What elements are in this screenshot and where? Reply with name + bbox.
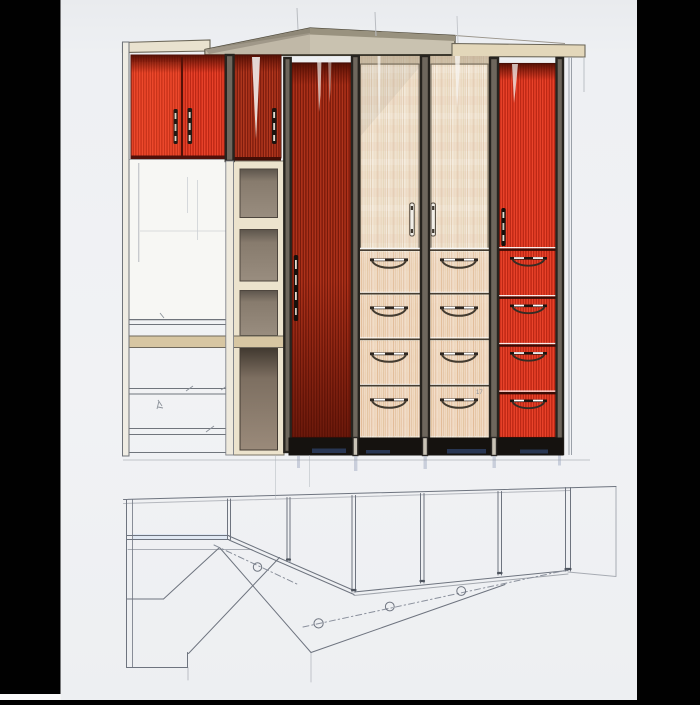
svg-text:17: 17: [476, 390, 483, 396]
